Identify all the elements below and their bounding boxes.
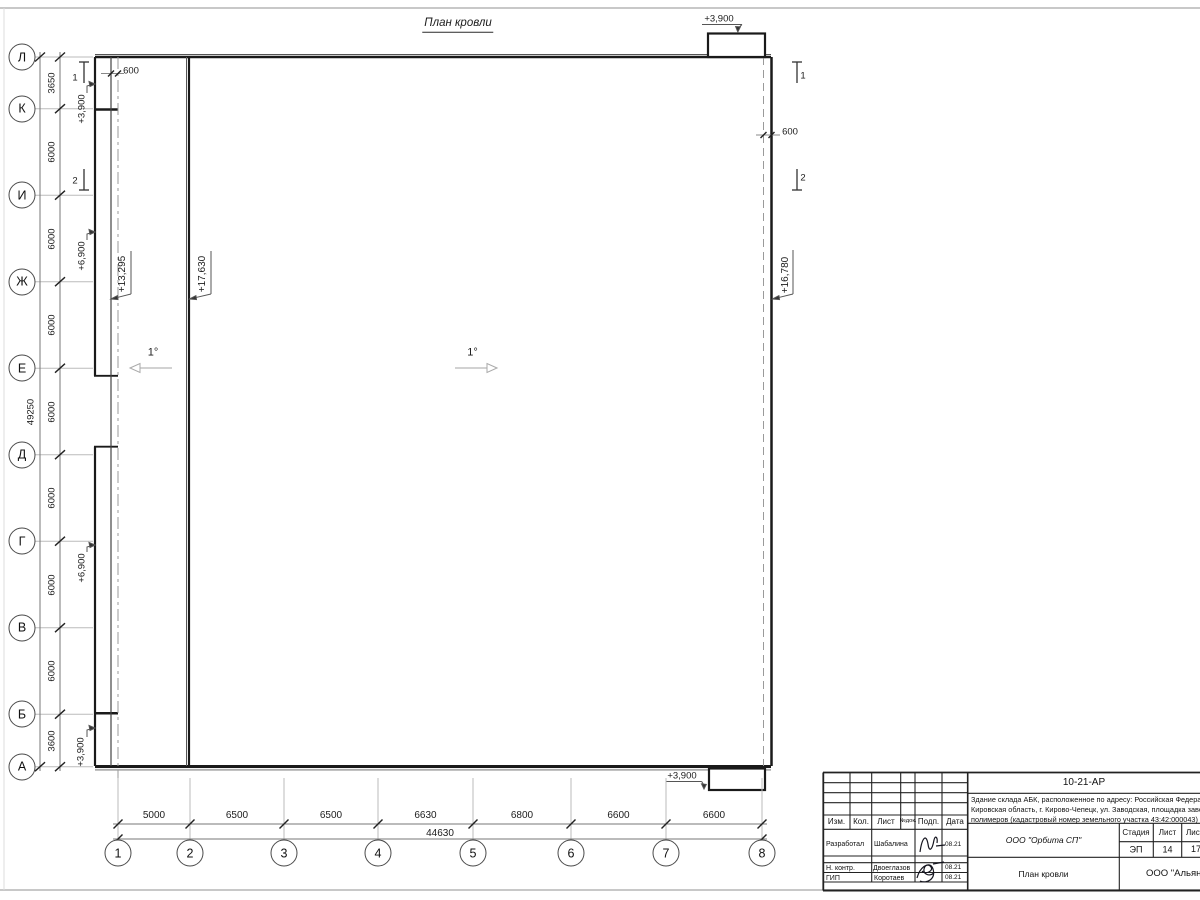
- axis-circle-col: 5: [460, 840, 487, 867]
- tb-stage-header: Стадия: [1122, 829, 1149, 837]
- tb-sheet-value: 14: [1162, 845, 1172, 854]
- axis-label: 7: [663, 846, 670, 860]
- axis-label: Б: [18, 707, 26, 721]
- axis-label: 3: [281, 846, 288, 860]
- axis-circle-row: И: [9, 182, 36, 209]
- dim-label: 6000: [47, 401, 57, 422]
- axis-circle-col: 7: [653, 840, 680, 867]
- dim-label: 6000: [47, 314, 57, 335]
- tb-sheets-header: Листов: [1186, 829, 1200, 837]
- section-mark-label: 1: [800, 71, 805, 81]
- dim-label: 3650: [47, 72, 57, 93]
- axis-label: Ж: [16, 275, 28, 289]
- slope-arrows: [130, 364, 497, 373]
- tb-organization: ООО "Альянс": [1146, 869, 1200, 879]
- tb-role: ГИП: [826, 875, 840, 882]
- axis-label: Г: [19, 534, 26, 548]
- tb-sheets-value: 17: [1191, 845, 1200, 854]
- dim-label: 6600: [703, 811, 725, 821]
- section-marks: [79, 62, 802, 190]
- roof-canopy-top: [708, 34, 765, 58]
- axis-circle-row: Л: [9, 44, 36, 71]
- tb-date: 08.21: [945, 875, 961, 882]
- axis-circle-row: Б: [9, 701, 36, 728]
- elevation-label: +3,900: [76, 737, 86, 766]
- slope-label: 1°: [467, 348, 478, 359]
- dim-label: 6500: [226, 811, 248, 821]
- dim-total-label: 49250: [26, 399, 36, 425]
- sheet-frame: [0, 8, 1200, 890]
- axis-label: В: [18, 621, 26, 635]
- tb-sheet-header: Лист: [1159, 829, 1176, 837]
- roof-canopy-bottom: [709, 769, 765, 791]
- dim-label: 6500: [320, 811, 342, 821]
- axis-circle-row: Д: [9, 441, 36, 468]
- tb-description-line: Здание склада АБК, расположенное по адре…: [971, 796, 1200, 803]
- axis-circle-row: А: [9, 753, 36, 780]
- dimension-ticks: [35, 53, 775, 844]
- axis-circle-col: 2: [177, 840, 204, 867]
- tb-header-podp: Подп.: [918, 818, 939, 826]
- tb-role: Н. контр.: [826, 865, 855, 872]
- dim-label: 6000: [47, 228, 57, 249]
- tb-header-izm: Изм.: [828, 818, 845, 826]
- tb-name: Коротаев: [874, 875, 904, 882]
- axis-label: 2: [187, 846, 194, 860]
- section-mark-label: 1: [72, 73, 77, 83]
- axis-circle-col: 8: [749, 840, 776, 867]
- roof-elevation-label: +16,780: [781, 256, 791, 292]
- axis-circle-col: 6: [558, 840, 585, 867]
- dim-label: 6800: [511, 811, 533, 821]
- dim-total-label: 44630: [426, 829, 454, 839]
- axis-label: Л: [18, 50, 26, 64]
- drawing-title: План кровли: [422, 18, 493, 33]
- tb-header-data: Дата: [946, 818, 964, 826]
- tb-document-code: 10-21-АР: [1063, 778, 1105, 788]
- axis-label: Д: [18, 448, 26, 462]
- dim-label: 6000: [47, 487, 57, 508]
- axis-circle-col: 4: [365, 840, 392, 867]
- tb-date: 08.21: [945, 865, 961, 872]
- slope-label: 1°: [148, 347, 159, 358]
- plan-linework: [0, 0, 1200, 900]
- section-mark-label: 2: [800, 173, 805, 183]
- axis-lines: [34, 57, 762, 840]
- offset-dim-label: 600: [123, 66, 139, 76]
- tb-header-kol: Кол.: [853, 818, 869, 826]
- tb-doc-title: План кровли: [1018, 870, 1068, 879]
- dimension-lines: [40, 52, 780, 839]
- dim-label: 3600: [47, 730, 57, 751]
- axis-circle-row: В: [9, 614, 36, 641]
- drawing-sheet: План кровли Л К И Ж Е Д Г В Б А 1 2 3 4 …: [0, 0, 1200, 900]
- tb-description-line: полимеров (кадастровый номер земельного …: [971, 816, 1198, 823]
- axis-circle-row: Г: [9, 528, 36, 555]
- dim-label: 6000: [47, 141, 57, 162]
- tb-header-list: Лист: [877, 818, 894, 826]
- roof-elevation-label: +13,295: [118, 255, 128, 291]
- dim-label: 6000: [47, 660, 57, 681]
- tb-company: ООО "Орбита СП": [1006, 836, 1081, 845]
- axis-label: 5: [470, 846, 477, 860]
- section-mark-label: 2: [72, 176, 77, 186]
- axis-circle-col: 1: [105, 840, 132, 867]
- elevation-leaders: [87, 25, 793, 790]
- axis-circle-col: 3: [271, 840, 298, 867]
- tb-date: 08.21: [945, 842, 961, 849]
- axis-label: А: [18, 760, 26, 774]
- dim-label: 6630: [414, 811, 436, 821]
- tb-header-ndok: №док.: [900, 819, 917, 825]
- elevation-label: +6,900: [77, 553, 87, 582]
- elevation-label: +6,900: [77, 241, 87, 270]
- signature-scribbles: [917, 837, 945, 882]
- dim-label: 6000: [47, 574, 57, 595]
- axis-label: 4: [375, 846, 382, 860]
- axis-label: 8: [759, 846, 766, 860]
- axis-circle-row: Ж: [9, 268, 36, 295]
- tb-name: Шабалина: [874, 841, 908, 848]
- axis-label: К: [18, 102, 25, 116]
- axis-label: 1: [115, 846, 122, 860]
- elevation-label: +3,900: [77, 94, 87, 123]
- building-outline: [94, 34, 772, 791]
- axis-label: Е: [18, 361, 26, 375]
- axis-label: И: [18, 188, 27, 202]
- dim-label: 5000: [143, 811, 165, 821]
- elevation-label: +3,900: [667, 771, 696, 781]
- dim-label: 6600: [607, 811, 629, 821]
- axis-circle-row: Е: [9, 355, 36, 382]
- tb-description-line: Кировская область, г. Кирово-Чепецк, ул.…: [971, 806, 1200, 813]
- elevation-label: +3,900: [704, 14, 733, 24]
- offset-dim-label: 600: [782, 127, 798, 137]
- roof-elevation-label: +17,630: [198, 255, 208, 291]
- tb-role: Разработал: [826, 841, 864, 848]
- tb-name: Двоеглазов: [873, 865, 910, 872]
- axis-circle-row: К: [9, 95, 36, 122]
- axis-label: 6: [568, 846, 575, 860]
- tb-stage-value: ЭП: [1130, 845, 1143, 854]
